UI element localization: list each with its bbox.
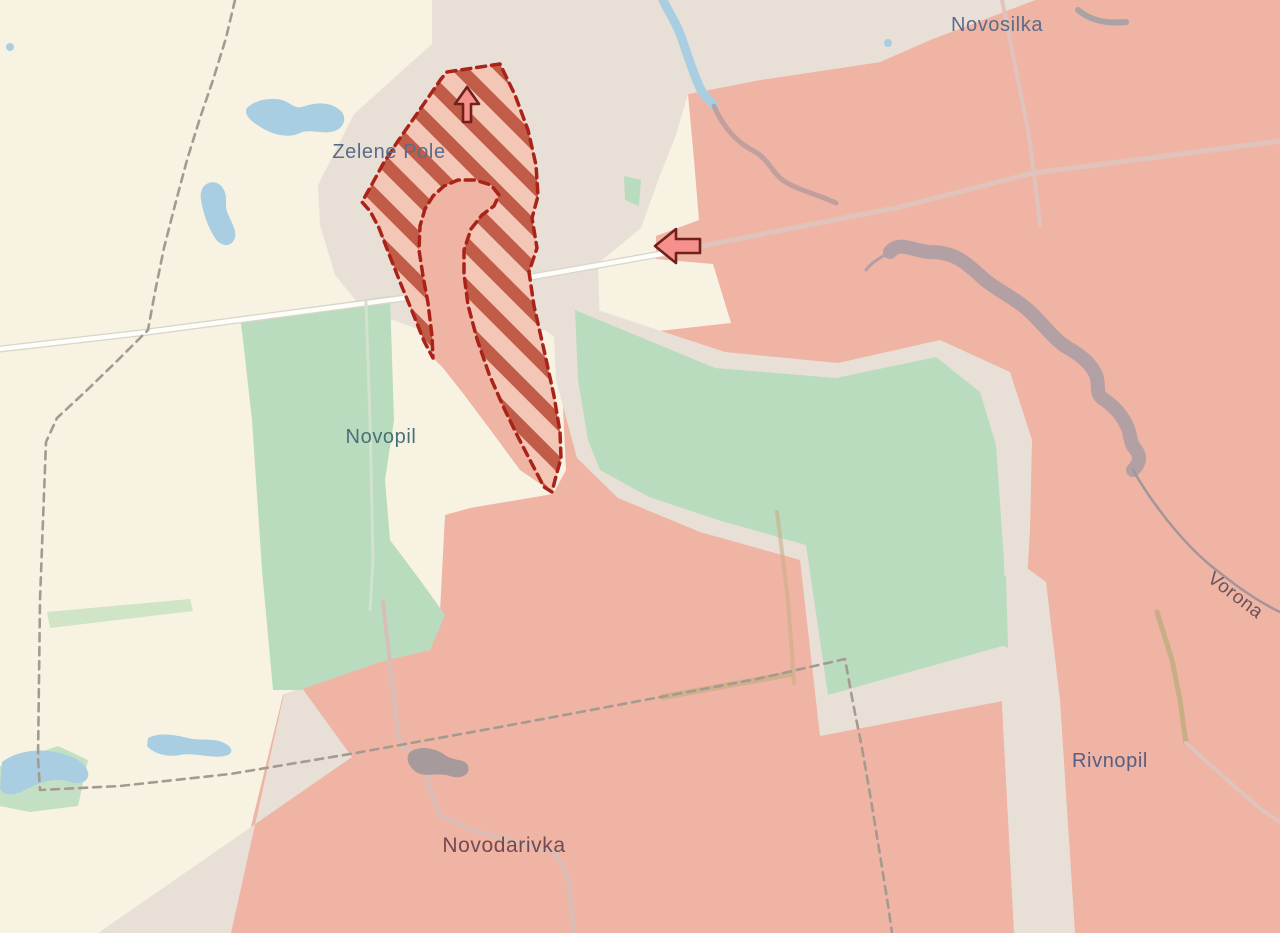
label-novodarivka: Novodarivka — [442, 834, 565, 857]
label-novosilka: Novosilka — [951, 14, 1043, 36]
pond-dot-west — [6, 43, 14, 51]
label-zelene-pole: Zelene Pole — [332, 141, 445, 163]
map-canvas[interactable]: Novosilka Zelene Pole Novopil Novodarivk… — [0, 0, 1280, 933]
label-rivnopil: Rivnopil — [1072, 750, 1148, 772]
pond-dot-north — [884, 39, 892, 47]
field-strip-east-edge — [993, 572, 1008, 648]
label-novopil: Novopil — [346, 426, 417, 448]
